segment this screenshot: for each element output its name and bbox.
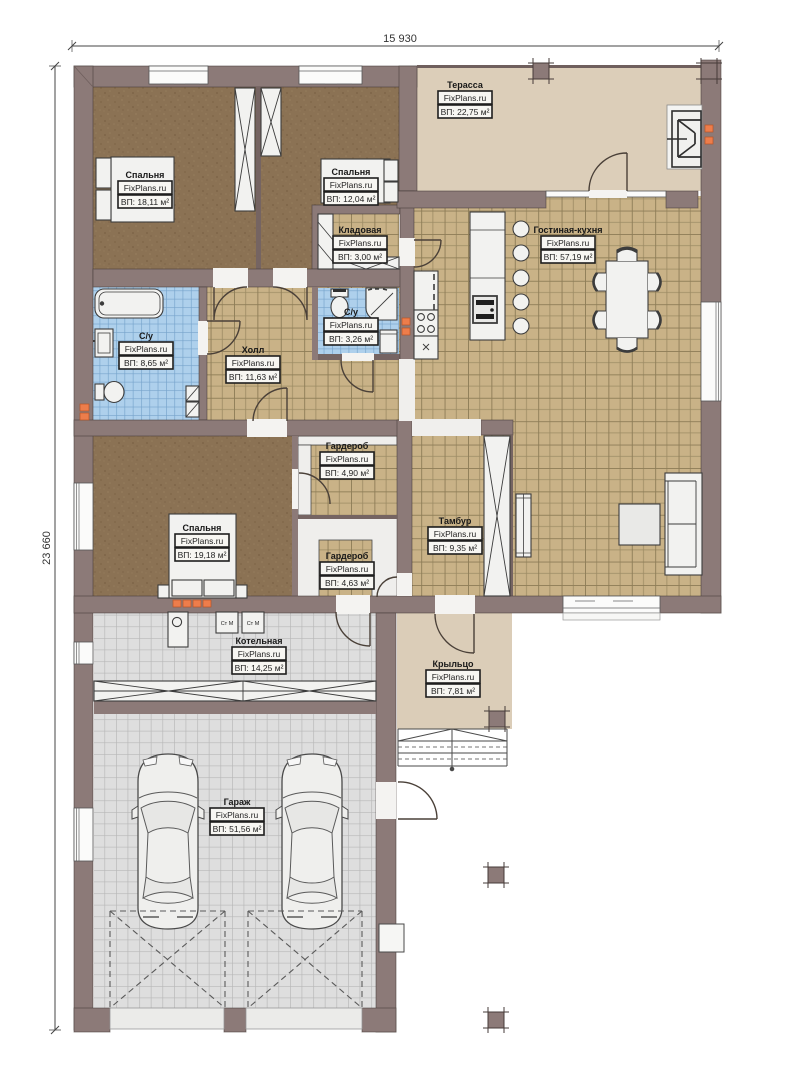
svg-text:FixPlans.ru: FixPlans.ru <box>339 238 382 248</box>
svg-text:ВП: 3,00 м²: ВП: 3,00 м² <box>338 252 382 262</box>
svg-text:Котельная: Котельная <box>235 636 282 646</box>
svg-text:FixPlans.ru: FixPlans.ru <box>125 344 168 354</box>
svg-text:ВП: 18,11 м²: ВП: 18,11 м² <box>121 197 169 207</box>
svg-text:ВП: 12,04 м²: ВП: 12,04 м² <box>327 194 376 204</box>
svg-text:ВП: 51,56 м²: ВП: 51,56 м² <box>213 824 262 834</box>
svg-text:FixPlans.ru: FixPlans.ru <box>432 672 475 682</box>
svg-text:FixPlans.ru: FixPlans.ru <box>547 238 590 248</box>
svg-text:ВП: 3,26 м²: ВП: 3,26 м² <box>329 334 373 344</box>
svg-text:Холл: Холл <box>242 345 265 355</box>
svg-text:FixPlans.ru: FixPlans.ru <box>444 93 487 103</box>
svg-text:Гардероб: Гардероб <box>326 551 369 561</box>
svg-text:Гостиная-кухня: Гостиная-кухня <box>534 225 603 235</box>
svg-text:Спальня: Спальня <box>183 523 222 533</box>
svg-text:ВП: 8,65 м²: ВП: 8,65 м² <box>124 358 168 368</box>
svg-text:ВП: 57,19 м²: ВП: 57,19 м² <box>544 252 593 262</box>
svg-text:Ст М: Ст М <box>221 621 234 627</box>
svg-text:FixPlans.ru: FixPlans.ru <box>434 529 477 539</box>
svg-text:FixPlans.ru: FixPlans.ru <box>326 564 369 574</box>
svg-text:Тамбур: Тамбур <box>439 516 472 526</box>
svg-text:ВП: 19,18 м²: ВП: 19,18 м² <box>178 550 227 560</box>
svg-text:ВП: 11,63 м²: ВП: 11,63 м² <box>229 372 277 382</box>
svg-text:ВП: 4,63 м²: ВП: 4,63 м² <box>325 578 369 588</box>
svg-text:15 930: 15 930 <box>383 33 417 45</box>
svg-text:ВП: 4,90 м²: ВП: 4,90 м² <box>325 468 369 478</box>
svg-text:Гардероб: Гардероб <box>326 441 369 451</box>
svg-text:Терасса: Терасса <box>447 80 484 90</box>
svg-text:23 660: 23 660 <box>41 531 53 565</box>
svg-text:Крыльцо: Крыльцо <box>433 659 474 669</box>
svg-text:FixPlans.ru: FixPlans.ru <box>232 358 275 368</box>
svg-text:FixPlans.ru: FixPlans.ru <box>216 810 259 820</box>
svg-text:ВП: 7,81 м²: ВП: 7,81 м² <box>431 686 475 696</box>
svg-text:FixPlans.ru: FixPlans.ru <box>330 320 373 330</box>
svg-text:Ст М: Ст М <box>247 621 260 627</box>
svg-text:С/у: С/у <box>344 307 358 317</box>
svg-text:FixPlans.ru: FixPlans.ru <box>326 454 369 464</box>
svg-text:С/у: С/у <box>139 331 153 341</box>
svg-text:ВП: 9,35 м²: ВП: 9,35 м² <box>433 543 477 553</box>
svg-text:Спальня: Спальня <box>332 167 371 177</box>
svg-text:ВП: 14,25 м²: ВП: 14,25 м² <box>235 663 284 673</box>
svg-text:FixPlans.ru: FixPlans.ru <box>330 180 373 190</box>
svg-text:Кладовая: Кладовая <box>338 225 381 235</box>
svg-text:ВП: 22,75 м²: ВП: 22,75 м² <box>441 107 490 117</box>
svg-text:FixPlans.ru: FixPlans.ru <box>238 649 281 659</box>
svg-text:Гараж: Гараж <box>224 797 251 807</box>
svg-text:FixPlans.ru: FixPlans.ru <box>124 183 167 193</box>
svg-text:FixPlans.ru: FixPlans.ru <box>181 536 224 546</box>
svg-text:Спальня: Спальня <box>126 170 165 180</box>
